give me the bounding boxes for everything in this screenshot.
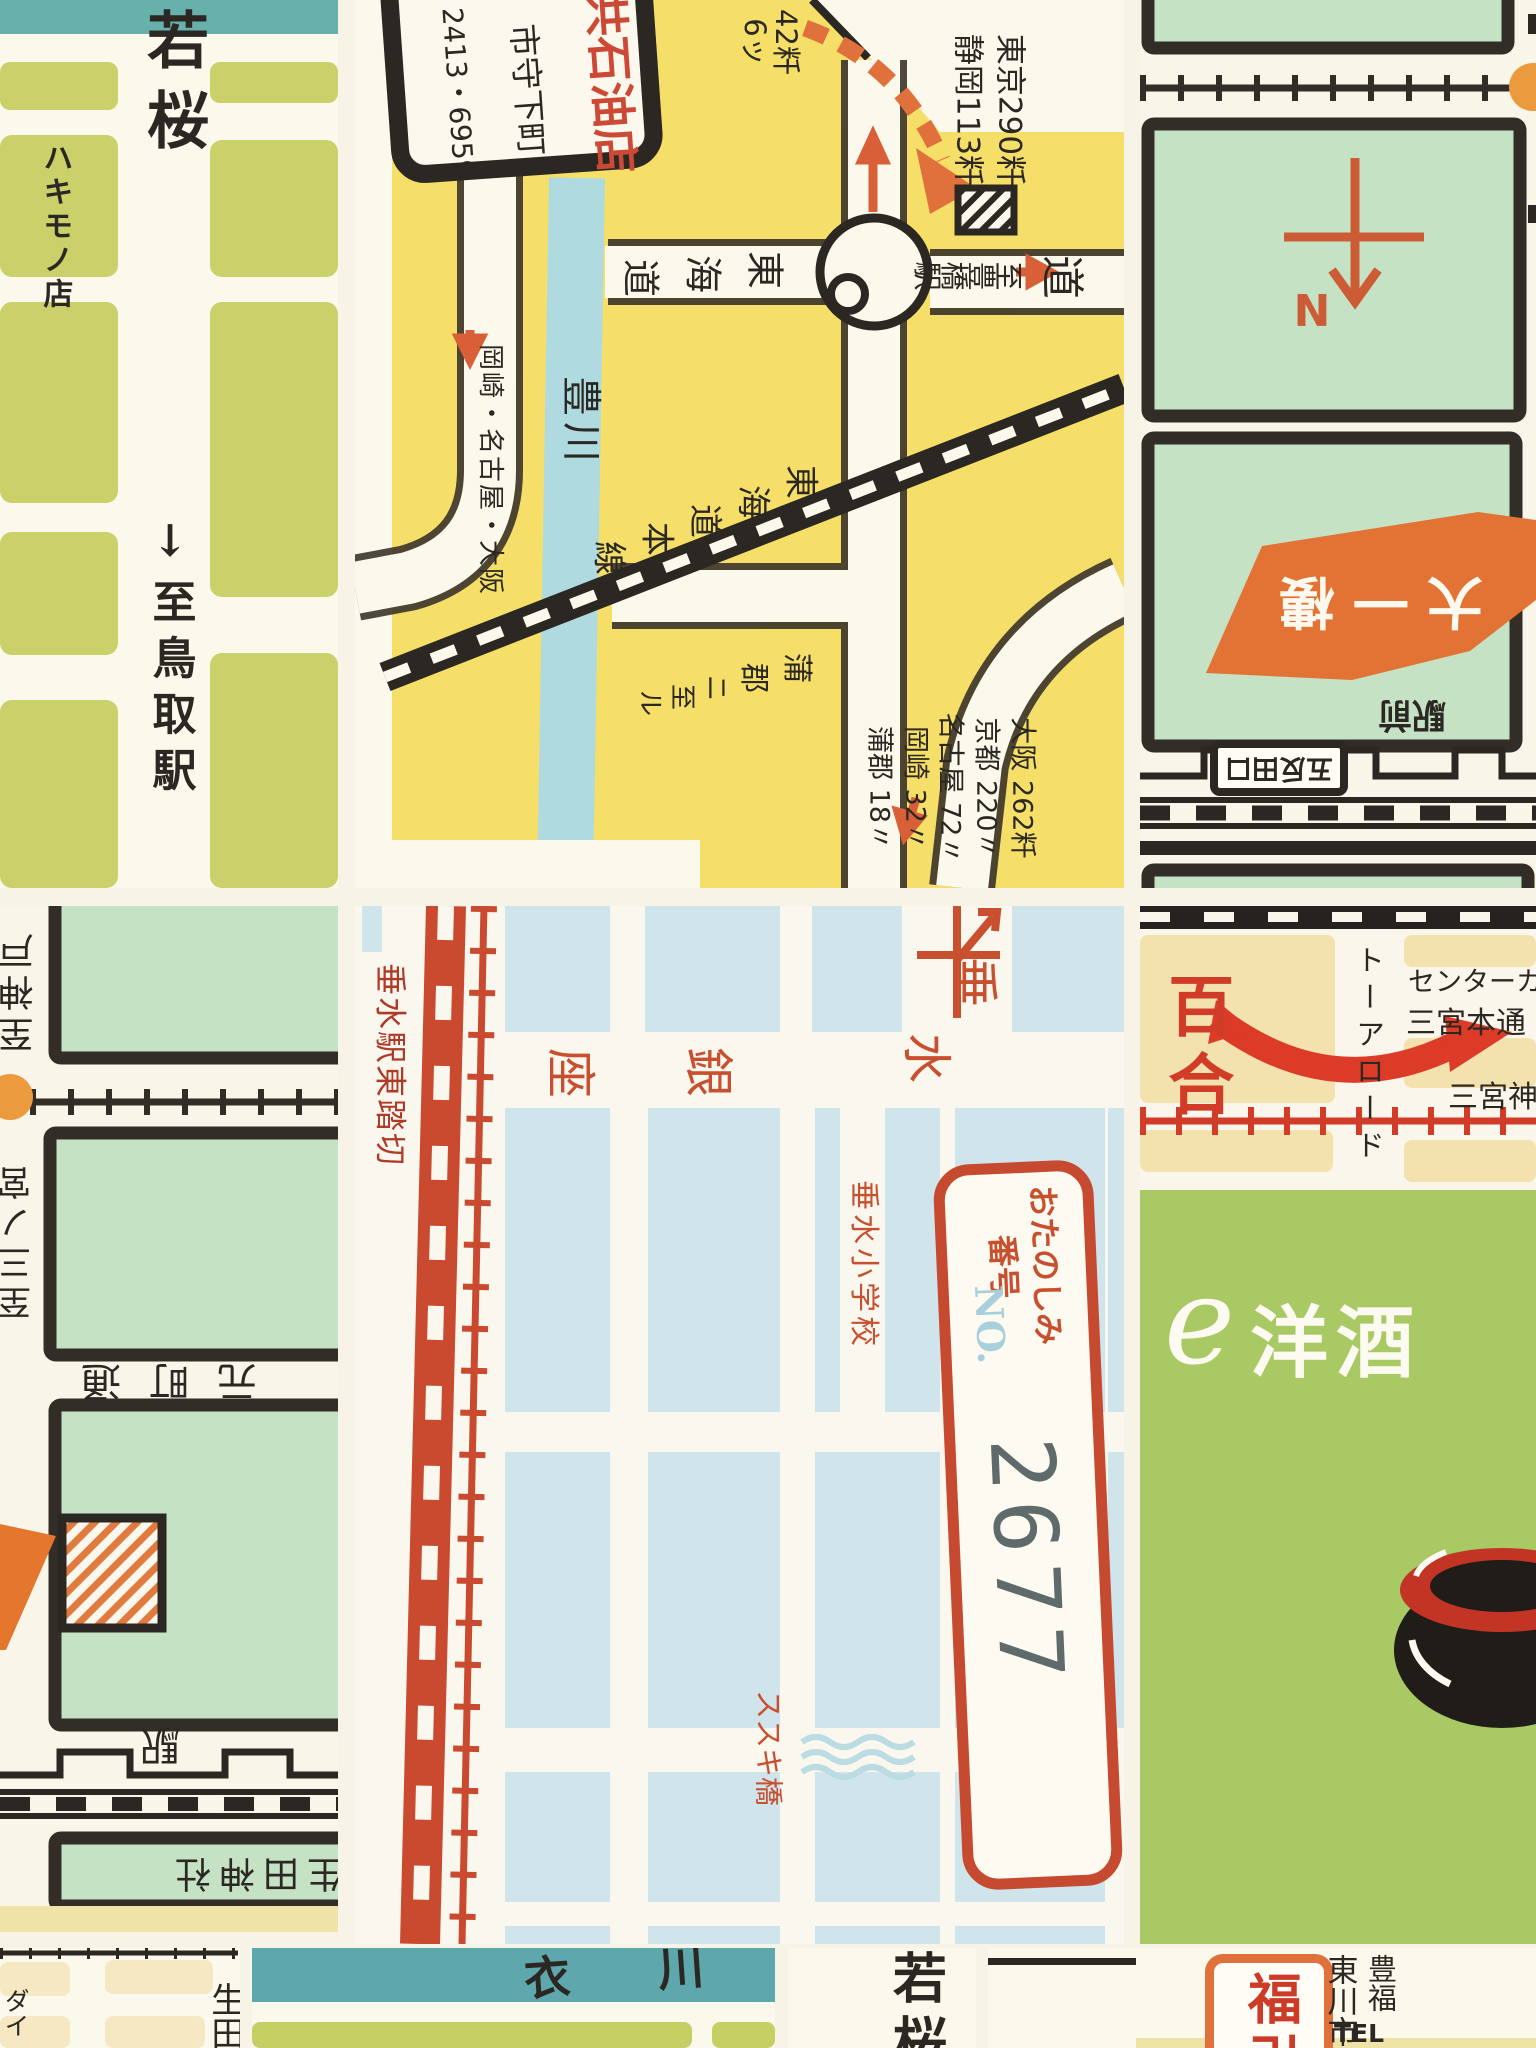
city-blocks [0, 1960, 213, 2048]
ginza-street-char: 垂 [941, 957, 1013, 1007]
to-kobe-label: 至神戸 [1, 927, 40, 1053]
ginza-street-char: 座 [538, 1048, 610, 1098]
tokaido-road-char: 海 [679, 255, 734, 293]
station-label: 駅 [140, 1722, 180, 1765]
river-waves [802, 1737, 914, 1777]
track-line [0, 1792, 338, 1816]
label-margin-band [0, 1906, 338, 1932]
sign-town-label: 市守下町 [505, 23, 550, 157]
city-blocks [50, 906, 338, 1906]
tel-label: TEL [1334, 2020, 1384, 2047]
stamp-number: 2677 [974, 1435, 1080, 1691]
street-name-label: 若桜 [138, 8, 205, 168]
matchbox-map-collage: 若桜 ハキモノ店 ↓至鳥取駅 [0, 0, 1536, 2048]
school-label: 垂水小学校 [847, 1180, 879, 1350]
panel-toyohashi: 2413・6959 市守下町 共石油店 42粁6ッ 東京290粁静岡113粁 豊… [355, 0, 1124, 888]
brand-script-letter: e [1164, 1258, 1235, 1388]
hondori-label: 三宮本通 [1406, 1008, 1526, 1040]
yuri-shop-label: 百合 [1160, 972, 1231, 1128]
track-line [1140, 800, 1536, 826]
sign-phone-label: 2413・6959 [436, 6, 478, 178]
panel-wakasa-fragment: 若桜 [788, 1948, 976, 2048]
lottery-stamp: おたのしみ番号 NO. 2677 [932, 1159, 1124, 1891]
panel-kinugawa: 衣 川 [252, 1948, 775, 2048]
tram-line [420, 906, 446, 1944]
product-label: 洋酒 [1250, 1302, 1422, 1386]
orange-wedge [0, 1524, 56, 1650]
oil-shop-signboard: 2413・6959 市守下町 共石油店 [377, 0, 665, 185]
panel-tor-road: 百合 トーアロード センターカ 三宮本通 三宮神 e 洋酒 [1140, 906, 1536, 1944]
gamagori-char: 蒲 [778, 653, 822, 683]
street-name-label: 若桜 [886, 1950, 944, 2048]
rail-line-char: 海 [732, 485, 781, 519]
roundabout-island [831, 277, 865, 311]
toyokawa-river [565, 178, 577, 888]
lottery-sign: 福引 [1205, 1954, 1333, 2048]
ginza-street-char: 水 [894, 1033, 966, 1083]
river-label: 豊川 [558, 376, 601, 468]
km-small-label: 42粁6ッ [676, 9, 864, 75]
rail-crossing-line [462, 906, 484, 1944]
rail-line-char: 東 [780, 465, 829, 499]
road-name-char: 道 [1034, 255, 1098, 299]
banner-label: 大一樓 [1261, 570, 1483, 630]
edge-label: ダイ [2, 1988, 29, 2038]
rail-line-char: 本 [636, 522, 685, 556]
station-dot-icon [0, 1074, 33, 1120]
address-column: 豊福 [1364, 1954, 1395, 2012]
sign-shop-label: 共石油店 [579, 0, 641, 175]
edge-fragment [1528, 14, 1536, 34]
ikuta-graphics [0, 1948, 240, 2048]
panel-fukubiki: 福引 東川市 豊福 TEL [988, 1948, 1536, 2048]
lottery-sign-label: 福引 [1240, 1971, 1298, 2048]
panel-station-grid: N 大一樓 五反田口 駅前 [1140, 0, 1536, 888]
center-street-label: センターカ [1408, 968, 1536, 997]
gamagori-char: 郡 [735, 663, 779, 693]
stamp-no-label: NO. [968, 1284, 1012, 1365]
km-list-label: 大阪 262粁京都 220〃名古屋 72〃岡崎 32〃蒲郡 18〃 [790, 713, 1111, 864]
gamagori-char: ル [634, 690, 671, 716]
building-marker [62, 1518, 162, 1628]
panel-ikuta: 生田 ダイ [0, 1948, 240, 2048]
to-toyohashi-char: 駅 [908, 261, 950, 290]
panel-tarumi: 垂水駅東踏切 垂水小学校 垂 水 銀 座 ススキ橋 おたのしみ番号 NO. 26… [355, 906, 1124, 1944]
tokaido-road-char: 東 [741, 251, 796, 289]
tokaido-road-char: 道 [617, 259, 672, 297]
city-block [712, 2022, 775, 2048]
to-sannomiya-label: 至三ノ宮 [0, 1160, 36, 1320]
ikuta-street-label: 生田 [206, 1982, 240, 2048]
ginza-street-char: 銀 [676, 1047, 748, 1097]
tor-road-label: トーアロード [1352, 945, 1383, 1167]
rail-line-char: 道 [684, 504, 733, 538]
bridge-label: ススキ橋 [752, 1690, 783, 1806]
panel-tottori: 若桜 ハキモノ店 ↓至鳥取駅 [0, 0, 338, 888]
ekimae-label: 駅前 [1378, 696, 1446, 733]
shrine-label: 三宮神 [1448, 1082, 1536, 1114]
shop-building-marker [958, 188, 1014, 232]
gamagori-char: 至 [666, 684, 703, 710]
rail-line-char: 線 [588, 541, 637, 575]
compass-north-label: N [1294, 284, 1331, 332]
edge-fragment [1528, 205, 1536, 223]
road-edge [988, 1958, 1136, 1965]
panel-sannomiya: 至神戸 至三ノ宮 元町通 駅 生田神社 [0, 906, 338, 1932]
crossing-label: 垂水駅東踏切 [373, 963, 408, 1167]
road-destination-label: 岡崎・名古屋・大阪 [476, 344, 504, 596]
shop-label: ハキモノ店 [38, 142, 70, 312]
shrine-label: 生田神社 [167, 1853, 338, 1892]
km-top-label: 東京290粁静岡113粁 [862, 34, 1113, 186]
gamagori-char: ニ [700, 675, 737, 701]
station-sign-label: 五反田口 [1225, 753, 1333, 782]
to-tottori-station-label: ↓至鳥取駅 [146, 516, 194, 803]
city-block [252, 2022, 692, 2048]
motomachi-street-label: 元町通 [53, 1358, 257, 1401]
station-sign: 五反田口 [1210, 740, 1348, 796]
station-dot-icon [1509, 63, 1536, 111]
sannomiya-map-graphics [0, 906, 338, 1932]
